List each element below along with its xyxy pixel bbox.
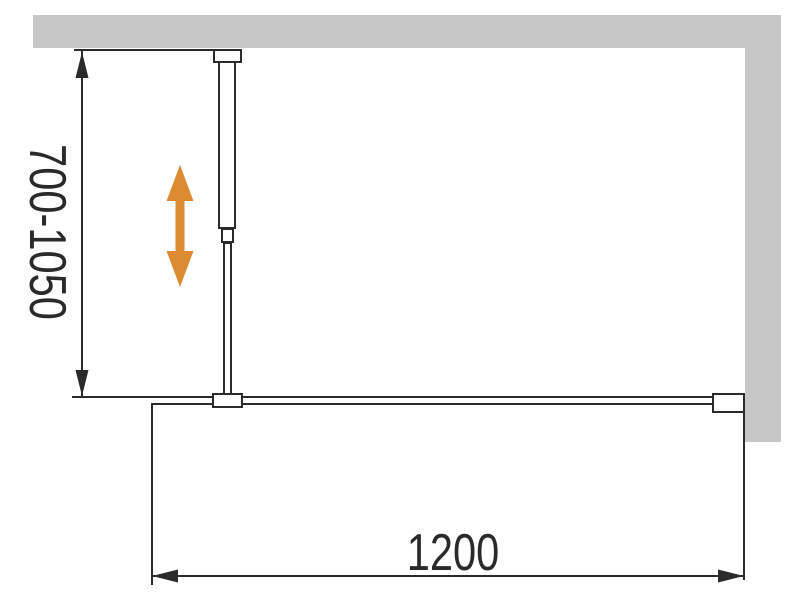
width-extension-line-left [151,403,153,585]
arrowheads-overlay [0,0,800,599]
height-dimension-line [81,51,83,397]
glass-clamp [212,393,243,408]
wall-mount-bracket [712,393,745,413]
width-extension-line-right [743,413,745,580]
adjustable-height-double-arrow-icon [167,165,194,287]
right-wall-bar [745,15,781,442]
height-range-label: 700-1050 [21,144,73,320]
support-bar-upper-tube [218,61,236,229]
support-bar-adjust-collar [221,228,234,243]
width-label: 1200 [407,527,500,579]
glass-panel-top-edge [72,396,712,398]
shower-panel-installation-diagram: 700-1050 1200 [0,0,800,599]
support-bar-lower-rod [223,242,232,396]
ceiling-wall-bar [33,15,781,48]
